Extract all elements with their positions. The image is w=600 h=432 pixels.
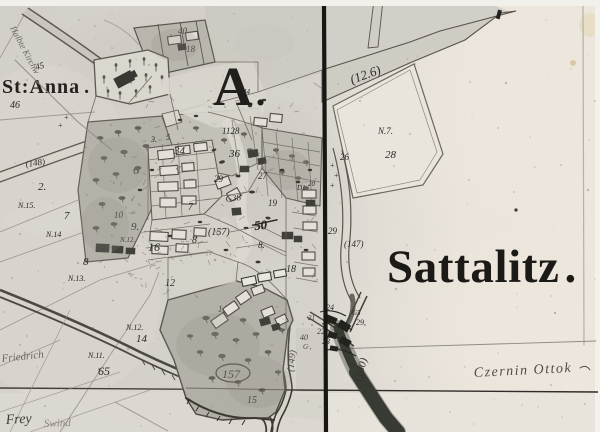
svg-text:28: 28 (385, 149, 397, 161)
svg-text:14: 14 (136, 333, 148, 345)
svg-text:St:Anna .: St:Anna . (2, 76, 90, 98)
svg-text:N.12.: N.12. (125, 323, 143, 332)
svg-text:29,: 29, (356, 318, 366, 327)
svg-text:8: 8 (83, 256, 89, 268)
svg-text:Swind: Swind (44, 417, 72, 430)
svg-text:+: + (64, 113, 69, 122)
svg-text:19: 19 (268, 198, 278, 208)
svg-text:7: 7 (64, 210, 70, 222)
svg-text:36: 36 (228, 148, 241, 160)
svg-text:34: 34 (173, 145, 186, 157)
svg-text:20: 20 (308, 180, 316, 188)
svg-text:3.: 3. (150, 135, 157, 144)
svg-text:N.14: N.14 (45, 230, 61, 239)
svg-text:2.: 2. (38, 181, 46, 193)
svg-text:N.13.: N.13. (67, 274, 85, 283)
svg-text:Sattalitz.: Sattalitz. (387, 241, 577, 293)
svg-text:(157): (157) (208, 227, 230, 238)
svg-text:12: 12 (165, 278, 175, 289)
svg-text:+: + (330, 161, 335, 170)
svg-text:65: 65 (98, 364, 110, 378)
svg-text:27: 27 (258, 171, 268, 181)
svg-text:N.11.: N.11. (87, 351, 105, 360)
svg-text:Frey: Frey (4, 412, 32, 428)
svg-text:44: 44 (243, 88, 251, 96)
svg-text:D1: D1 (296, 184, 306, 192)
svg-text:46: 46 (10, 100, 20, 111)
svg-text:+: + (330, 181, 335, 190)
svg-text:+: + (58, 121, 63, 130)
svg-text:29: 29 (214, 174, 224, 184)
svg-text:+: + (334, 171, 339, 180)
svg-text:N.15.: N.15. (17, 201, 35, 210)
svg-text:26: 26 (340, 152, 350, 162)
svg-text:18: 18 (286, 264, 296, 275)
svg-text:5: 5 (166, 133, 170, 142)
svg-text:16: 16 (148, 240, 160, 254)
svg-text:N.7.: N.7. (377, 126, 393, 136)
svg-text:29: 29 (328, 226, 338, 236)
svg-text:1128: 1128 (222, 126, 240, 136)
svg-text:8.: 8. (258, 240, 265, 250)
svg-text:8: 8 (192, 235, 197, 246)
svg-text:G5: G5 (352, 309, 361, 317)
svg-text:(147): (147) (344, 239, 364, 249)
